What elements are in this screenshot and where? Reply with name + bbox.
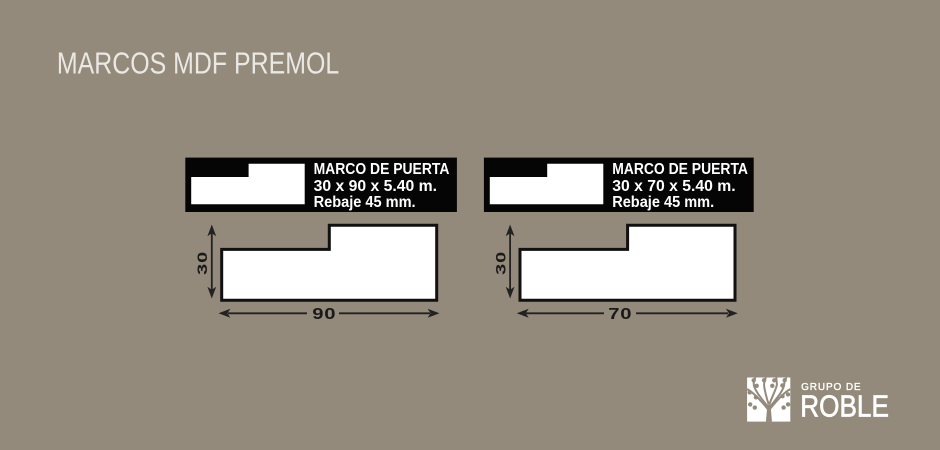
svg-text:30: 30 <box>493 251 509 275</box>
svg-text:MARCO DE PUERTA: MARCO DE PUERTA <box>314 161 450 178</box>
svg-text:Rebaje 45 mm.: Rebaje 45 mm. <box>612 194 714 211</box>
svg-text:MARCOS MDF PREMOL: MARCOS MDF PREMOL <box>57 46 339 81</box>
svg-text:90: 90 <box>312 305 336 322</box>
svg-text:30 x 70 x 5.40 m.: 30 x 70 x 5.40 m. <box>612 178 735 195</box>
svg-text:30: 30 <box>194 251 210 275</box>
svg-text:70: 70 <box>608 305 632 322</box>
svg-text:MARCO DE PUERTA: MARCO DE PUERTA <box>612 161 748 178</box>
svg-text:Rebaje 45 mm.: Rebaje 45 mm. <box>314 194 416 211</box>
svg-text:ROBLE: ROBLE <box>800 388 889 423</box>
svg-text:30 x 90 x 5.40 m.: 30 x 90 x 5.40 m. <box>314 178 437 195</box>
